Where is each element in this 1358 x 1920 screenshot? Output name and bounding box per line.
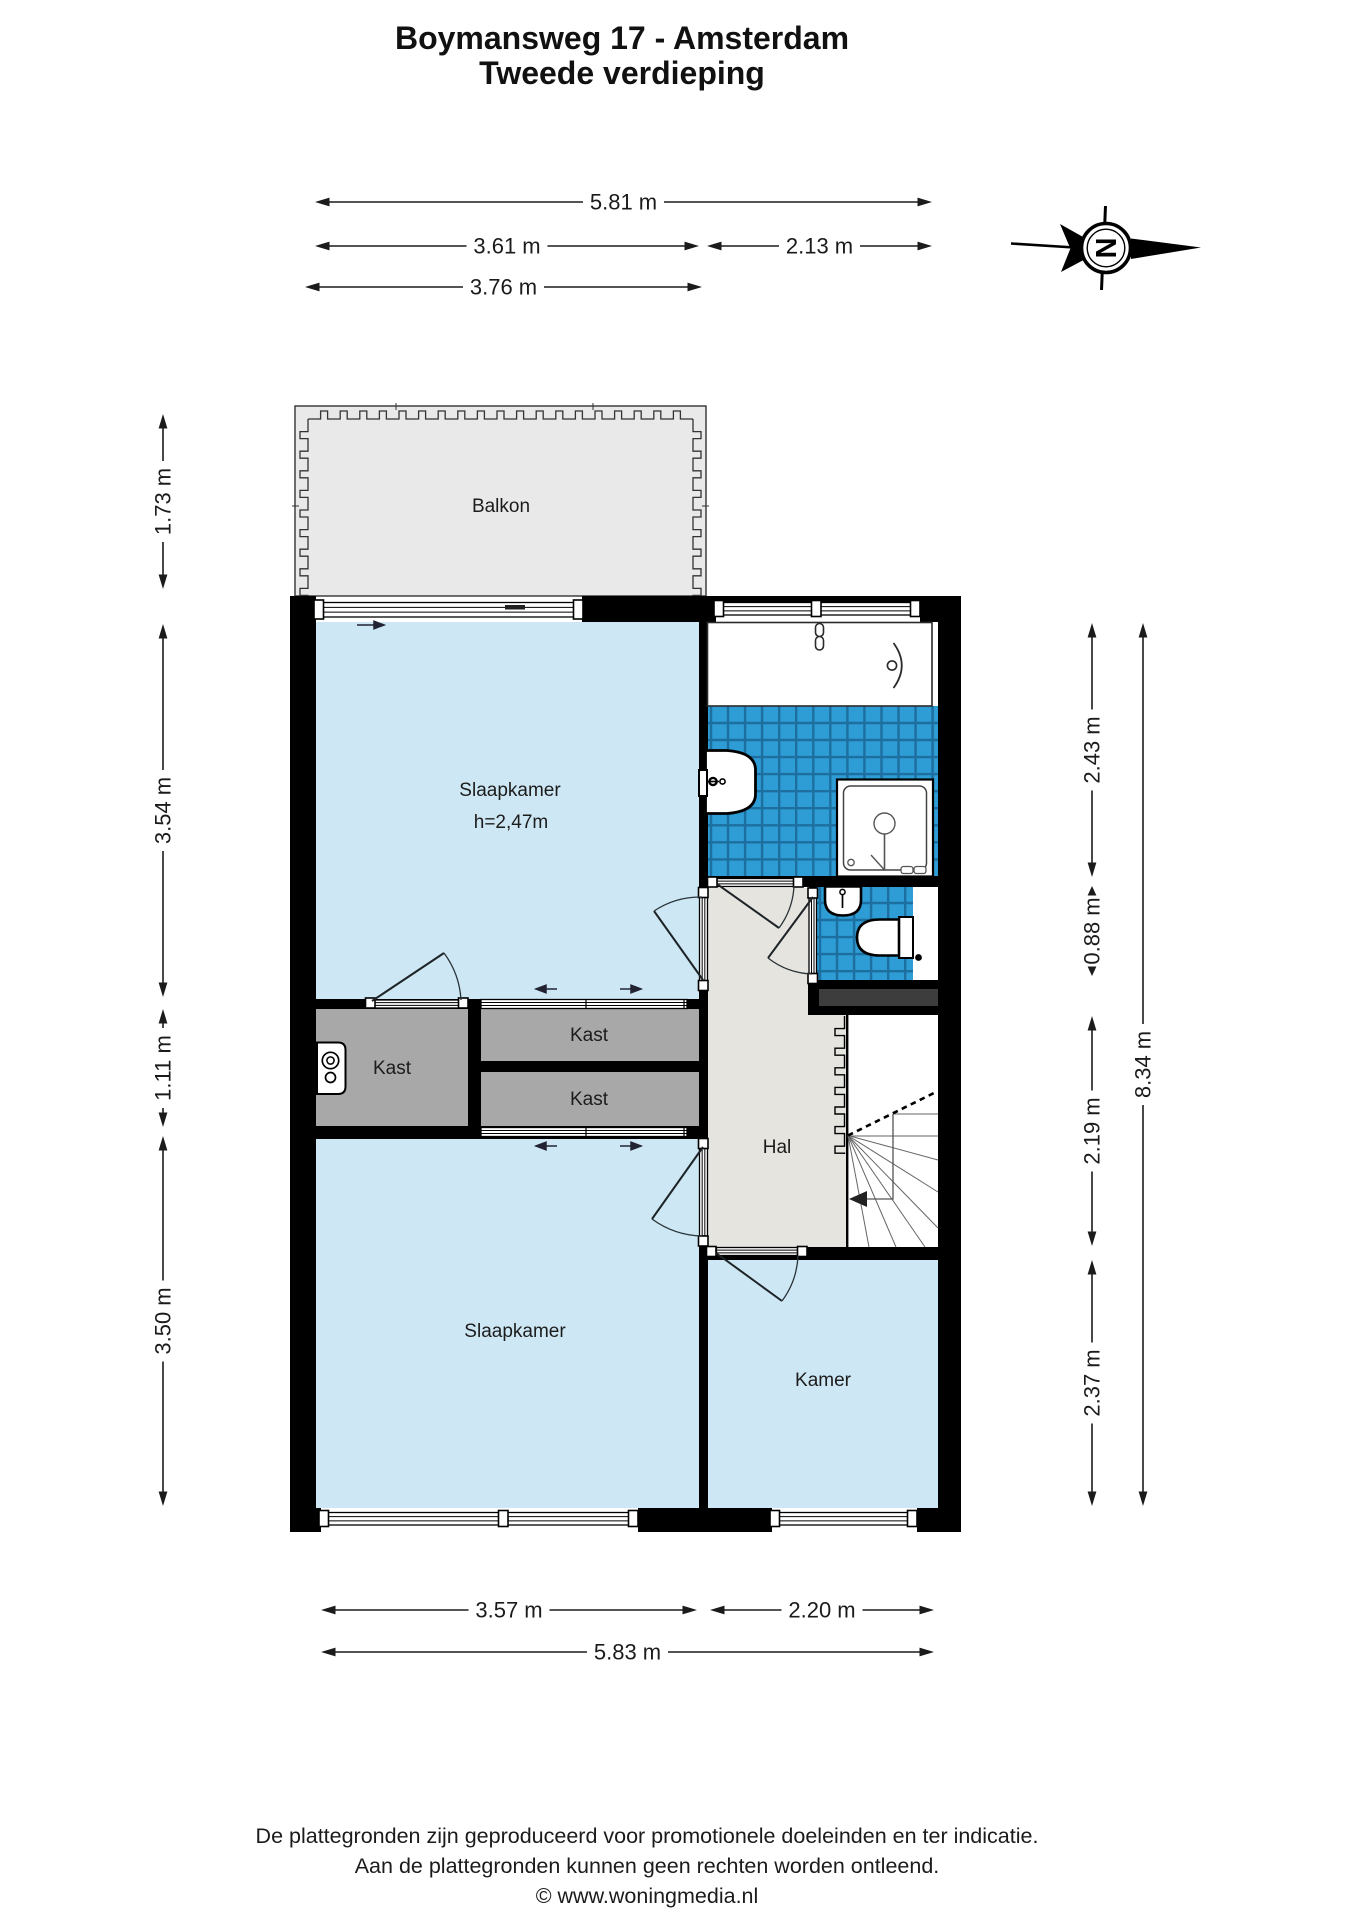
svg-text:2.43 m: 2.43 m (1080, 716, 1105, 783)
svg-text:Hal: Hal (763, 1137, 792, 1158)
svg-text:De plattegronden zijn geproduc: De plattegronden zijn geproduceerd voor … (256, 1824, 1039, 1848)
svg-text:2.13 m: 2.13 m (786, 234, 853, 259)
svg-text:8.34 m: 8.34 m (1131, 1031, 1156, 1098)
svg-text:5.81 m: 5.81 m (590, 190, 657, 215)
svg-text:Balkon: Balkon (472, 496, 530, 517)
svg-text:Slaapkamer: Slaapkamer (459, 780, 561, 801)
svg-text:Slaapkamer: Slaapkamer (464, 1321, 566, 1342)
svg-text:h=2,47m: h=2,47m (474, 812, 548, 833)
svg-text:3.57 m: 3.57 m (475, 1598, 542, 1623)
svg-text:1.73 m: 1.73 m (151, 468, 176, 535)
svg-text:3.61 m: 3.61 m (473, 234, 540, 259)
svg-text:© www.woningmedia.nl: © www.woningmedia.nl (536, 1884, 759, 1908)
svg-text:3.76 m: 3.76 m (470, 275, 537, 300)
svg-text:Kast: Kast (373, 1058, 412, 1079)
svg-text:N: N (1089, 238, 1121, 259)
svg-text:5.83 m: 5.83 m (594, 1640, 661, 1665)
svg-text:3.50 m: 3.50 m (151, 1287, 176, 1354)
svg-text:2.19 m: 2.19 m (1080, 1097, 1105, 1164)
svg-text:0.88 m: 0.88 m (1080, 897, 1105, 964)
svg-text:1.11 m: 1.11 m (151, 1035, 176, 1101)
svg-text:3.54 m: 3.54 m (151, 777, 176, 844)
svg-text:Kamer: Kamer (795, 1370, 852, 1391)
svg-text:Kast: Kast (570, 1025, 609, 1046)
svg-text:Tweede verdieping: Tweede verdieping (479, 55, 765, 91)
svg-text:Kast: Kast (570, 1089, 609, 1110)
svg-text:Boymansweg 17 - Amsterdam: Boymansweg 17 - Amsterdam (395, 20, 849, 56)
svg-text:2.37 m: 2.37 m (1080, 1349, 1105, 1416)
svg-text:2.20 m: 2.20 m (788, 1598, 855, 1623)
svg-text:Aan de plattegronden kunnen ge: Aan de plattegronden kunnen geen rechten… (355, 1854, 940, 1878)
